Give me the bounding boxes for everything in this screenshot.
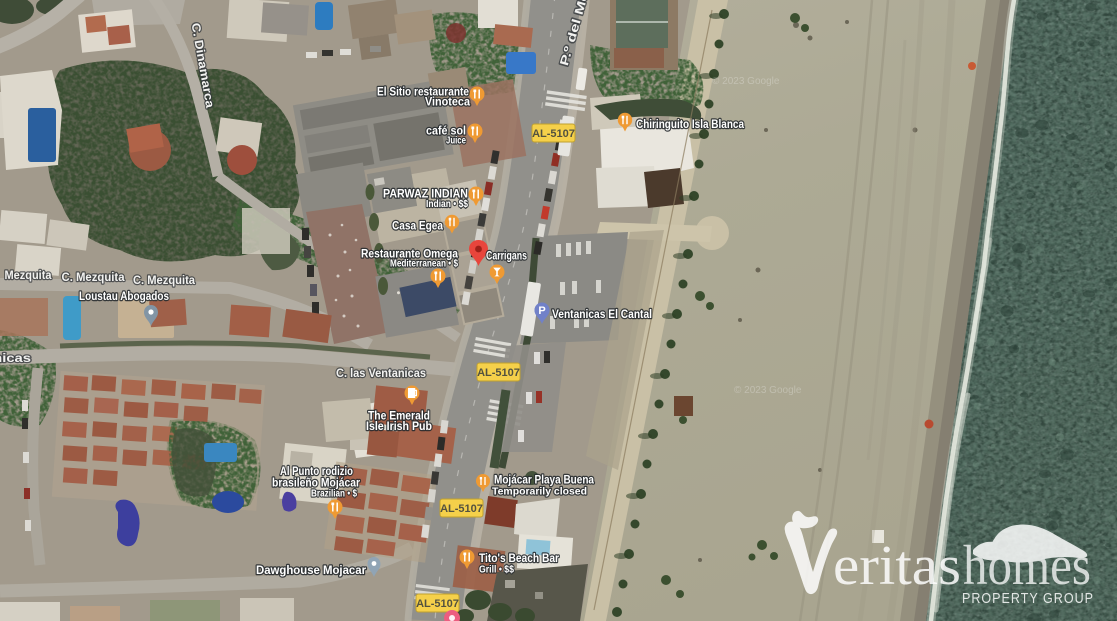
svg-text:AL-5107: AL-5107 [416, 598, 459, 610]
svg-text:Temporarily closed: Temporarily closed [492, 486, 587, 498]
svg-text:C. Mezquita: C. Mezquita [62, 270, 125, 284]
svg-text:Isle Irish Pub: Isle Irish Pub [366, 419, 432, 433]
svg-text:C. Mezquita: C. Mezquita [133, 273, 195, 287]
svg-text:Mezquita: Mezquita [5, 268, 52, 282]
svg-text:Juice: Juice [446, 135, 466, 147]
svg-text:P: P [538, 305, 545, 317]
svg-text:Brazilian • $: Brazilian • $ [311, 488, 357, 500]
svg-text:C. las Ventanicas: C. las Ventanicas [336, 366, 426, 380]
svg-text:Vinoteca: Vinoteca [425, 95, 470, 109]
svg-text:© 2023 Google: © 2023 Google [712, 76, 780, 87]
svg-text:© 2023 Google: © 2023 Google [734, 385, 802, 396]
svg-text:Loustau Abogados: Loustau Abogados [79, 289, 169, 303]
svg-text:Casa Egea: Casa Egea [392, 219, 443, 233]
svg-text:ntanicas: ntanicas [0, 351, 31, 365]
svg-text:Chiringuito Isla Blanca: Chiringuito Isla Blanca [636, 117, 744, 131]
svg-text:Dawghouse Mojacar: Dawghouse Mojacar [256, 563, 366, 577]
svg-text:Indian • $$: Indian • $$ [426, 198, 468, 210]
svg-text:Grill • $$: Grill • $$ [479, 564, 514, 576]
svg-text:Carrigans: Carrigans [486, 249, 527, 263]
svg-text:Mediterranean • $: Mediterranean • $ [390, 258, 458, 270]
svg-text:eritas: eritas [833, 535, 961, 597]
svg-text:AL-5107: AL-5107 [440, 503, 483, 515]
svg-text:Mojácar Playa Buena: Mojácar Playa Buena [494, 473, 594, 487]
svg-text:AL-5107: AL-5107 [532, 128, 575, 140]
svg-text:Ventanicas El Cantal: Ventanicas El Cantal [552, 307, 652, 321]
svg-text:AL-5107: AL-5107 [477, 367, 520, 379]
svg-text:PROPERTY GROUP: PROPERTY GROUP [962, 590, 1094, 607]
